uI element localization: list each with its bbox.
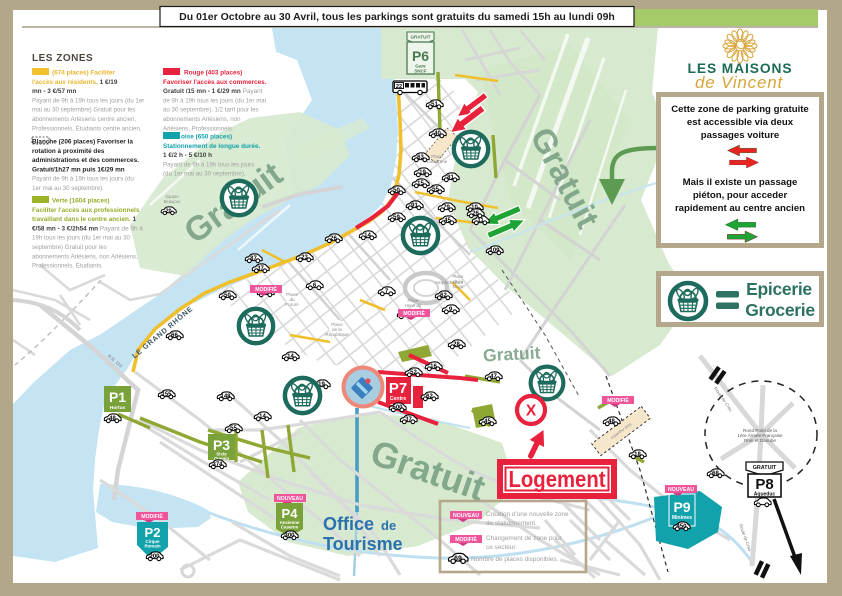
svg-text:de Vincent: de Vincent bbox=[695, 73, 784, 92]
svg-text:l'accès aux résidents. 1 €/19: l'accès aux résidents. 1 €/19 bbox=[32, 79, 118, 86]
svg-text:passages voiture: passages voiture bbox=[701, 130, 779, 141]
svg-text:Payant de 9h à 19h tous les jo: Payant de 9h à 19h tous les jours (du bbox=[32, 176, 134, 183]
svg-text:Du 01er Octobre au 30 Avril, t: Du 01er Octobre au 30 Avril, tous les pa… bbox=[179, 11, 615, 23]
svg-text:mai au 30 septembre) Gratuit p: mai au 30 septembre) Gratuit pour les bbox=[32, 107, 135, 114]
svg-text:19h tous les jours (du 1er mai: 19h tous les jours (du 1er mai au 30 bbox=[32, 235, 131, 242]
svg-text:(674 places) Faciliter: (674 places) Faciliter bbox=[52, 70, 115, 77]
svg-text:LES ZONES: LES ZONES bbox=[32, 53, 93, 64]
svg-text:mn - 3 €/57 mn: mn - 3 €/57 mn bbox=[32, 88, 76, 95]
svg-text:Favoriser l'accès aux commerce: Favoriser l'accès aux commerces. bbox=[163, 79, 267, 86]
svg-text:(du 1er mai au 30 septembre).: (du 1er mai au 30 septembre). bbox=[163, 171, 246, 178]
svg-text:€/58 mn - 3 €/2h54 mn Payant: €/58 mn - 3 €/2h54 mn Payant de 9h à bbox=[32, 225, 143, 232]
svg-text:1 €/2 h - 5 €/10 h: 1 €/2 h - 5 €/10 h bbox=[163, 152, 212, 159]
svg-text:rotation à proximité des: rotation à proximité des bbox=[32, 148, 105, 155]
svg-text:travaillant dans le centre anc: travaillant dans le centre ancien. 1 bbox=[32, 216, 137, 223]
svg-text:Professionnels, Étudiants cent: Professionnels, Étudiants centre ancien. bbox=[32, 125, 142, 132]
svg-text:au 30 septembre). 1/2 tarif po: au 30 septembre). 1/2 tarif pour les bbox=[163, 107, 259, 114]
svg-text:Faciliter l'accès aux professi: Faciliter l'accès aux professionnels bbox=[32, 207, 140, 214]
svg-text:Professionnels, Étudiants.: Professionnels, Étudiants. bbox=[32, 263, 103, 270]
svg-text:Gratuit/1h27 mn puis 1€/29 mn: Gratuit/1h27 mn puis 1€/29 mn bbox=[32, 166, 125, 173]
svg-text:Payant de 9h à 19h tous les jo: Payant de 9h à 19h tous les jours (du 1e… bbox=[32, 97, 144, 104]
svg-text:Grocerie: Grocerie bbox=[745, 300, 815, 320]
svg-text:1er mai au 30 septembre).: 1er mai au 30 septembre). bbox=[32, 185, 104, 192]
svg-text:Stationnement de longue durée.: Stationnement de longue durée. bbox=[163, 143, 261, 150]
svg-text:septembre) Gratuit pour les: septembre) Gratuit pour les bbox=[32, 244, 107, 251]
svg-text:Rouge (403 places): Rouge (403 places) bbox=[184, 70, 242, 77]
svg-text:abonnements Arlésiens, non: abonnements Arlésiens, non bbox=[163, 116, 241, 123]
svg-text:de 9h à 19h tous les jours (du: de 9h à 19h tous les jours (du 1er mai bbox=[163, 97, 266, 104]
svg-text:piéton, pour acceder: piéton, pour acceder bbox=[693, 190, 788, 201]
svg-text:oise (650 places): oise (650 places) bbox=[181, 134, 232, 141]
svg-text:est accessible via deux: est accessible via deux bbox=[687, 117, 794, 128]
svg-text:Epicerie: Epicerie bbox=[746, 279, 812, 299]
svg-text:abonnements Arlésiens, non Arl: abonnements Arlésiens, non Arlésiens, bbox=[32, 253, 138, 260]
svg-text:administrations et des commerc: administrations et des commerces. bbox=[32, 157, 139, 164]
svg-text:Payant de 9h à 19h tous les jo: Payant de 9h à 19h tous les jours bbox=[163, 161, 254, 168]
svg-text:Blanche (206 places) Favoriser: Blanche (206 places) Favoriser la bbox=[32, 139, 133, 146]
svg-text:Mais il existe un passage: Mais il existe un passage bbox=[683, 177, 798, 188]
svg-text:Arlésiens, Professionnels.: Arlésiens, Professionnels. bbox=[163, 125, 234, 132]
svg-text:Verte (1604 places): Verte (1604 places) bbox=[52, 198, 110, 205]
svg-text:rapidement au centre ancien: rapidement au centre ancien bbox=[675, 203, 805, 214]
svg-text:abonnements Arlésiens centre a: abonnements Arlésiens centre ancien, bbox=[32, 116, 136, 123]
svg-text:Gratuit /15 mn - 1 €/29 mn P: Gratuit /15 mn - 1 €/29 mn Payant bbox=[163, 88, 263, 95]
svg-text:Cette zone de parking gratuite: Cette zone de parking gratuite bbox=[671, 104, 809, 115]
